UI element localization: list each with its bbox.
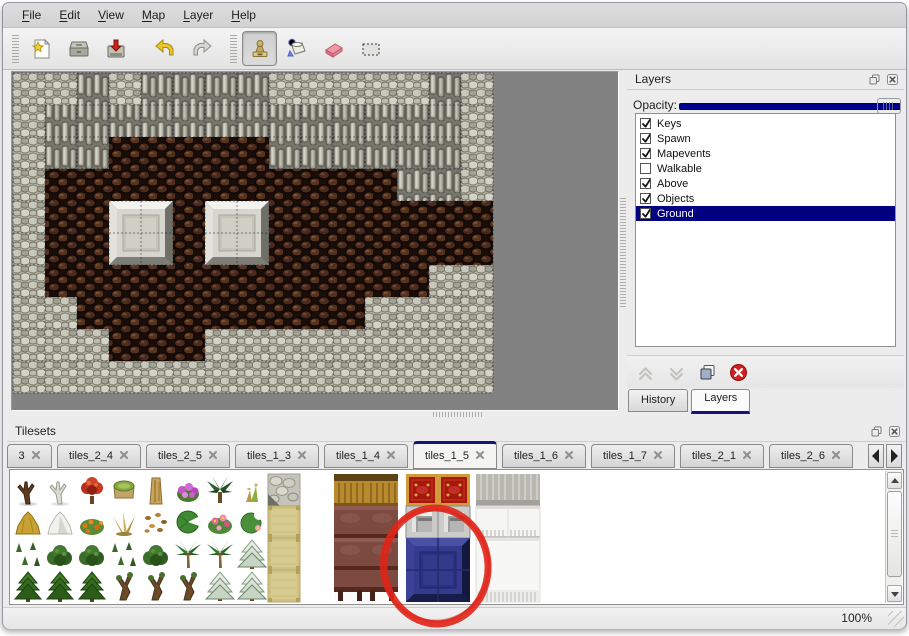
zoom-level: 100%: [841, 611, 872, 625]
layer-checkbox[interactable]: [640, 193, 651, 204]
toolbar-handle[interactable]: [12, 35, 19, 63]
tab-scroll-right-icon[interactable]: [886, 444, 902, 468]
layer-row-spawn[interactable]: Spawn: [636, 131, 895, 146]
layer-buttons: [627, 355, 904, 388]
tab-label: tiles_1_6: [514, 450, 558, 462]
tab-label: tiles_1_7: [603, 450, 647, 462]
select-button[interactable]: [353, 31, 388, 66]
layer-checkbox[interactable]: [640, 118, 651, 129]
move-up-icon[interactable]: [635, 362, 655, 382]
tab-close-icon[interactable]: [475, 450, 485, 463]
dock-tab-history[interactable]: History: [628, 389, 688, 412]
tab-scroll-left-icon[interactable]: [868, 444, 884, 468]
dock-tab-layers[interactable]: Layers: [691, 389, 750, 414]
tab-label: tiles_2_5: [158, 450, 202, 462]
layers-dock: Layers Opacity: KeysSpawnMapeventsWalkab…: [627, 67, 904, 411]
layer-row-objects[interactable]: Objects: [636, 191, 895, 206]
layer-row-walkable[interactable]: Walkable: [636, 161, 895, 176]
menu-view[interactable]: View: [89, 4, 133, 27]
new-file-button[interactable]: [24, 31, 59, 66]
tab-close-icon[interactable]: [386, 450, 396, 463]
tab-label: 3: [18, 450, 24, 462]
tab-close-icon[interactable]: [31, 450, 41, 463]
tileset-tiles[interactable]: [10, 470, 870, 604]
tileset-tab-tiles_1_5[interactable]: tiles_1_5: [413, 441, 497, 469]
layer-row-keys[interactable]: Keys: [636, 116, 895, 131]
tileset-tab-tiles_2_5[interactable]: tiles_2_5: [146, 444, 230, 468]
tileset-tab-3[interactable]: 3: [7, 444, 52, 468]
tileset-tab-tiles_1_4[interactable]: tiles_1_4: [324, 444, 408, 468]
layer-name: Walkable: [657, 163, 702, 175]
tileset-content[interactable]: [9, 469, 904, 605]
tab-close-icon[interactable]: [831, 450, 841, 463]
layers-panel-header: Layers: [627, 69, 904, 90]
layer-checkbox[interactable]: [640, 133, 651, 144]
tileset-tab-tiles_1_3[interactable]: tiles_1_3: [235, 444, 319, 468]
close-panel-icon[interactable]: [888, 425, 901, 438]
float-panel-icon[interactable]: [870, 425, 883, 438]
tileset-tab-bar: 3tiles_2_4tiles_2_5tiles_1_3tiles_1_4til…: [7, 441, 906, 469]
open-button[interactable]: [61, 31, 96, 66]
tilesets-dock: Tilesets 3tiles_2_4tiles_2_5tiles_1_3til…: [7, 419, 906, 607]
opacity-slider[interactable]: [679, 98, 901, 112]
layer-row-above[interactable]: Above: [636, 176, 895, 191]
opacity-slider-handle[interactable]: [877, 98, 901, 114]
app-window: FileEditViewMapLayerHelp Layers Opacity:…: [2, 2, 907, 629]
tab-close-icon[interactable]: [119, 450, 129, 463]
tilesets-panel-header: Tilesets: [7, 421, 906, 442]
toolbar-handle[interactable]: [230, 35, 237, 63]
layer-name: Keys: [657, 118, 681, 130]
tileset-tab-tiles_2_4[interactable]: tiles_2_4: [57, 444, 141, 468]
tab-label: tiles_1_4: [336, 450, 380, 462]
float-panel-icon[interactable]: [868, 73, 881, 86]
menu-map[interactable]: Map: [133, 4, 174, 27]
scrollbar-thumb[interactable]: [887, 491, 902, 577]
layer-row-ground[interactable]: Ground: [636, 206, 895, 221]
layer-name: Objects: [657, 193, 694, 205]
menu-bar: FileEditViewMapLayerHelp: [3, 3, 906, 28]
layer-list: KeysSpawnMapeventsWalkableAboveObjectsGr…: [635, 113, 896, 347]
eraser-button[interactable]: [316, 31, 351, 66]
map-render: [12, 72, 618, 410]
undo-button[interactable]: [147, 31, 182, 66]
layer-checkbox[interactable]: [640, 178, 651, 189]
tab-close-icon[interactable]: [653, 450, 663, 463]
tab-close-icon[interactable]: [742, 450, 752, 463]
layer-row-mapevents[interactable]: Mapevents: [636, 146, 895, 161]
layer-name: Above: [657, 178, 688, 190]
scroll-up-icon[interactable]: [887, 472, 902, 489]
tab-label: tiles_1_3: [247, 450, 291, 462]
toolbar: [3, 28, 906, 70]
scroll-down-icon[interactable]: [887, 585, 902, 602]
duplicate-icon[interactable]: [697, 362, 717, 382]
tileset-tab-tiles_2_1[interactable]: tiles_2_1: [680, 444, 764, 468]
tab-close-icon[interactable]: [564, 450, 574, 463]
save-button[interactable]: [98, 31, 133, 66]
map-canvas[interactable]: [11, 71, 619, 411]
tileset-tab-tiles_1_6[interactable]: tiles_1_6: [502, 444, 586, 468]
layer-checkbox[interactable]: [640, 148, 651, 159]
tab-label: tiles_1_5: [425, 450, 469, 462]
tileset-scrollbar[interactable]: [885, 471, 902, 603]
tileset-tab-tiles_2_6[interactable]: tiles_2_6: [769, 444, 853, 468]
delete-icon[interactable]: [728, 362, 748, 382]
menu-help[interactable]: Help: [222, 4, 265, 27]
resize-grip[interactable]: [888, 611, 904, 627]
layer-checkbox[interactable]: [640, 163, 651, 174]
menu-edit[interactable]: Edit: [50, 4, 89, 27]
status-bar: 100%: [3, 607, 906, 629]
opacity-label: Opacity:: [627, 98, 679, 112]
tab-label: tiles_2_6: [781, 450, 825, 462]
tab-close-icon[interactable]: [297, 450, 307, 463]
horizontal-splitter[interactable]: [433, 412, 483, 417]
tab-label: tiles_2_1: [692, 450, 736, 462]
menu-file[interactable]: File: [13, 4, 50, 27]
tab-close-icon[interactable]: [208, 450, 218, 463]
tileset-tab-tiles_1_7[interactable]: tiles_1_7: [591, 444, 675, 468]
layer-name: Mapevents: [657, 148, 711, 160]
stamp-button[interactable]: [242, 31, 277, 66]
layer-name: Ground: [657, 208, 694, 220]
vertical-splitter[interactable]: [620, 198, 626, 308]
layer-name: Spawn: [657, 133, 691, 145]
tab-label: tiles_2_4: [69, 450, 113, 462]
dock-tabs: HistoryLayers: [628, 389, 750, 411]
tilesets-panel-title: Tilesets: [7, 424, 870, 438]
layer-checkbox[interactable]: [640, 208, 651, 219]
menu-layer[interactable]: Layer: [174, 4, 222, 27]
fill-button[interactable]: [279, 31, 314, 66]
opacity-slider-track[interactable]: [679, 103, 901, 110]
move-down-icon[interactable]: [666, 362, 686, 382]
close-panel-icon[interactable]: [886, 73, 899, 86]
redo-button[interactable]: [184, 31, 219, 66]
layers-panel-title: Layers: [627, 72, 868, 86]
opacity-row: Opacity:: [627, 97, 904, 113]
